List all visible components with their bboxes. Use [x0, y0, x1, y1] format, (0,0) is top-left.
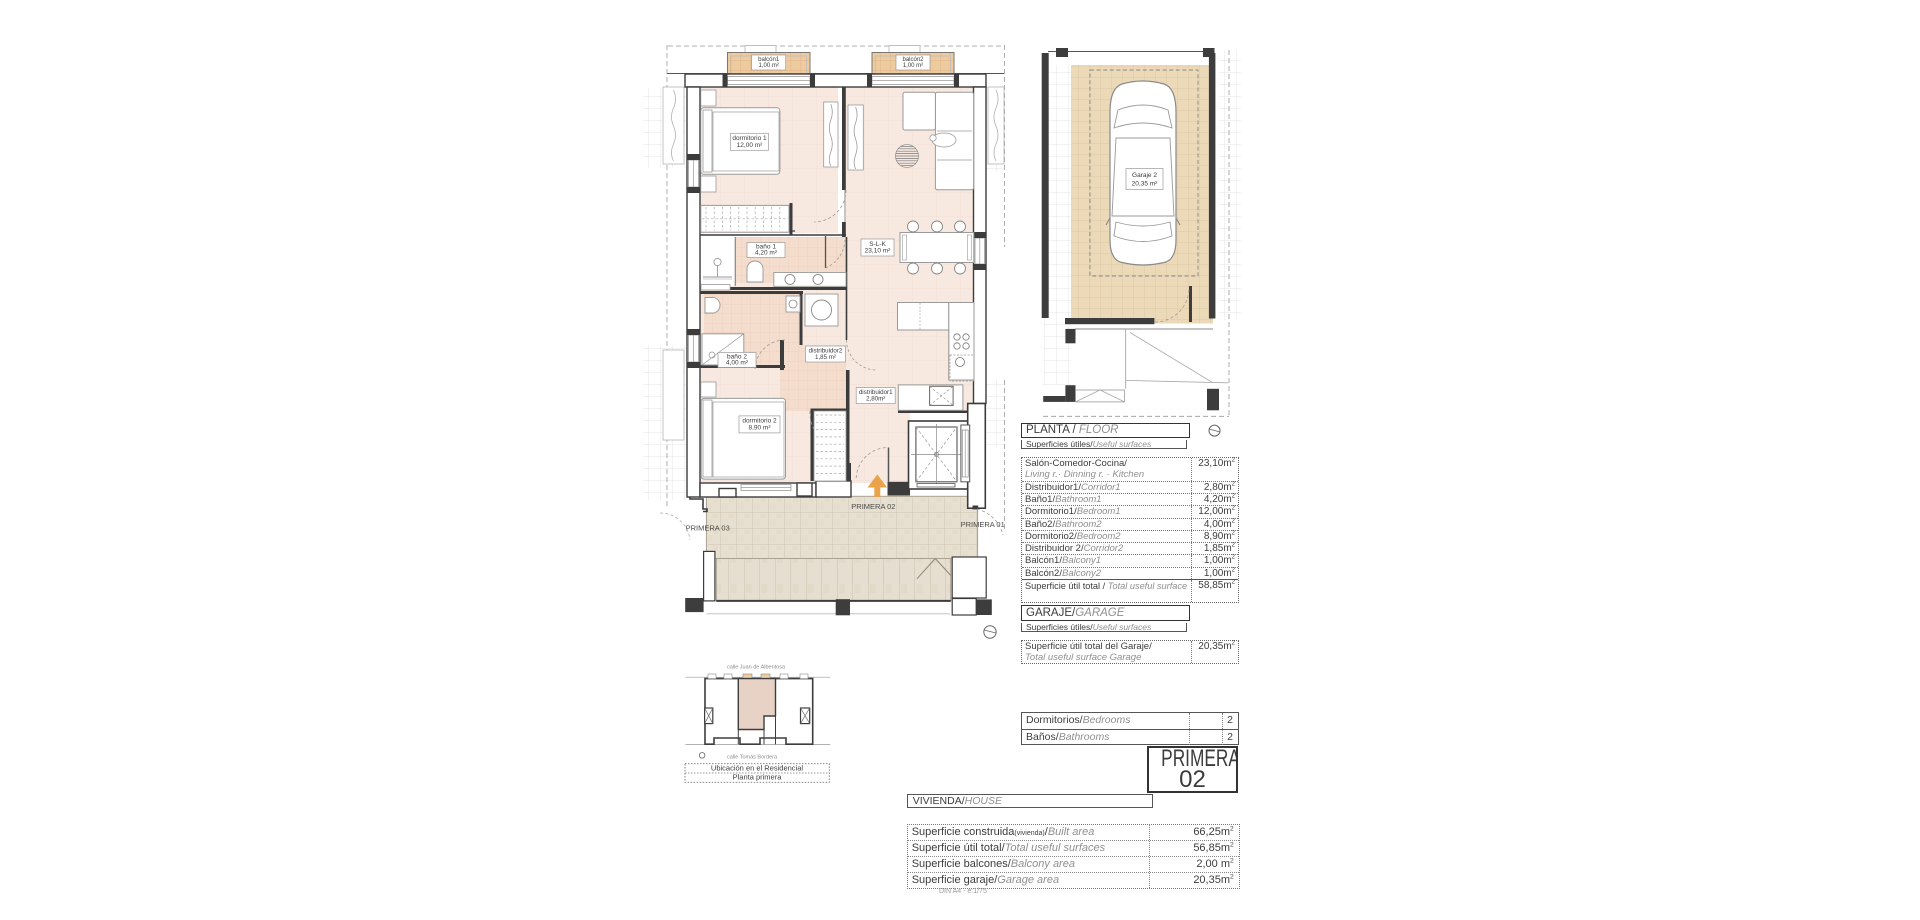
- svg-text:4,00 m²: 4,00 m²: [726, 360, 749, 367]
- svg-text:20,35 m²: 20,35 m²: [1132, 180, 1158, 187]
- svg-text:1,00 m²: 1,00 m²: [759, 63, 779, 69]
- svg-text:1,85 m²: 1,85 m²: [815, 354, 836, 361]
- svg-text:Ubicación en el Residencial: Ubicación en el Residencial: [711, 763, 803, 772]
- svg-text:PRIMERA 02: PRIMERA 02: [851, 502, 895, 511]
- svg-text:12,00 m²: 12,00 m²: [737, 142, 763, 149]
- svg-text:PRIMERA 01: PRIMERA 01: [961, 520, 1005, 529]
- svg-text:calle Juan de Albentosa: calle Juan de Albentosa: [727, 665, 786, 671]
- svg-text:PRIMERA 03: PRIMERA 03: [686, 524, 730, 533]
- svg-text:Planta primera: Planta primera: [733, 773, 783, 782]
- svg-text:4,20 m²: 4,20 m²: [755, 250, 778, 257]
- svg-text:Garaje 2: Garaje 2: [1132, 172, 1157, 179]
- svg-text:2,80m²: 2,80m²: [866, 395, 885, 402]
- svg-text:1,00 m²: 1,00 m²: [903, 63, 923, 69]
- svg-text:23,10 m²: 23,10 m²: [865, 248, 891, 255]
- svg-text:calle Tomás Bordera: calle Tomás Bordera: [727, 755, 778, 761]
- svg-text:8,90 m²: 8,90 m²: [748, 425, 771, 432]
